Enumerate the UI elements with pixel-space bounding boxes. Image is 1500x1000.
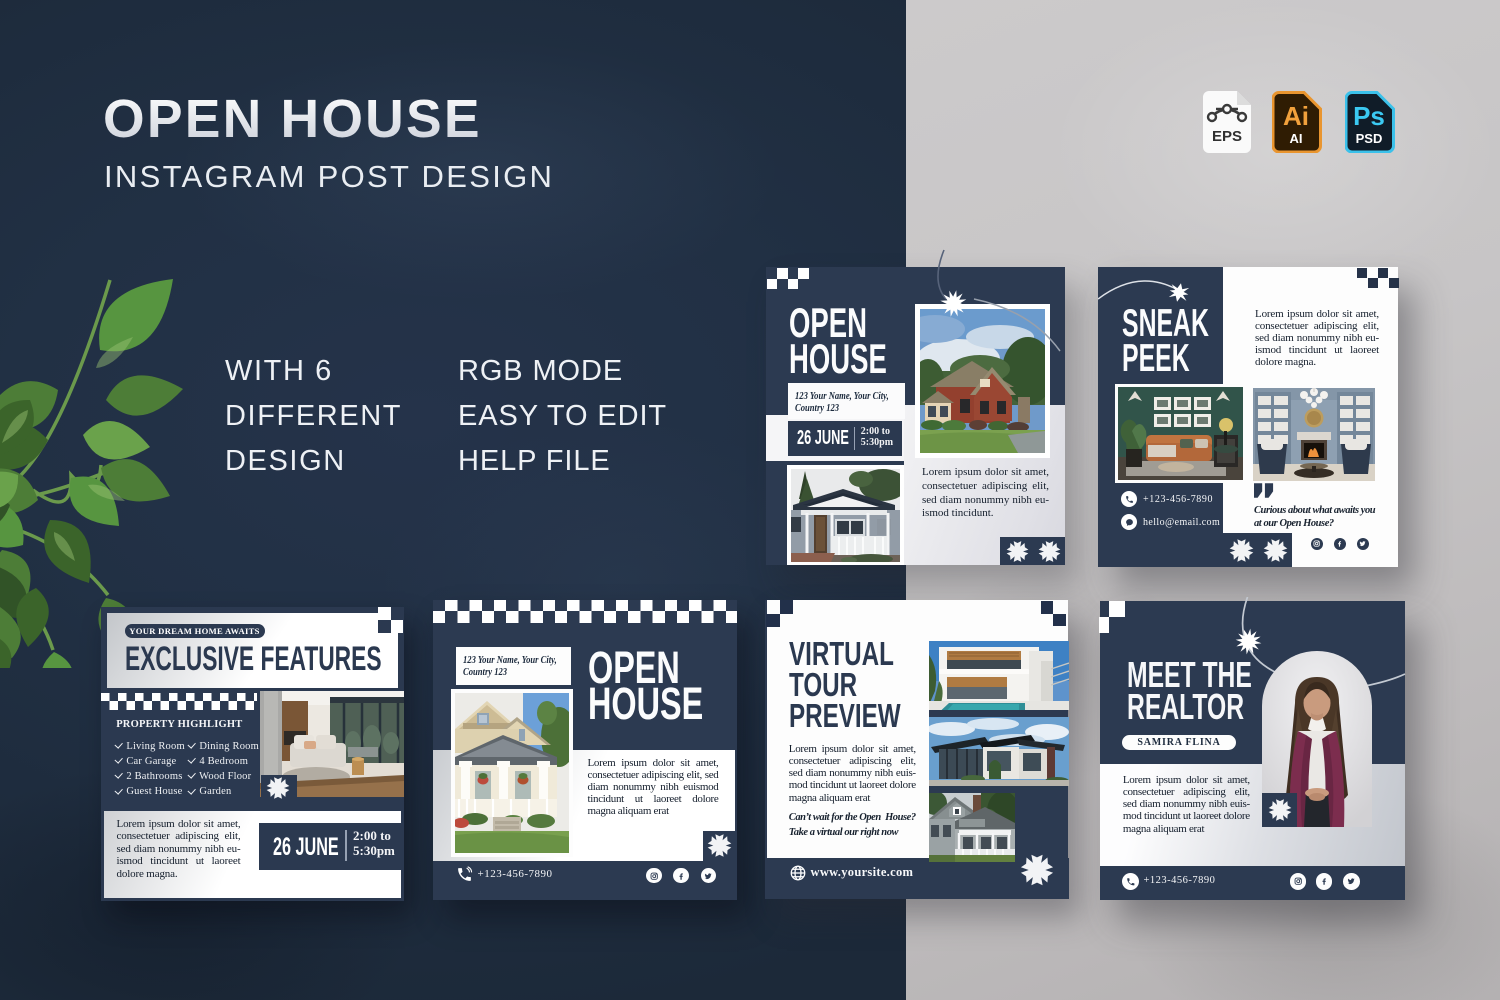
svg-text:Ps: Ps [1353, 101, 1385, 131]
svg-text:PSD: PSD [1356, 131, 1383, 146]
svg-text:EPS: EPS [1212, 128, 1242, 145]
svg-text:Ai: Ai [1283, 101, 1309, 131]
svg-text:AI: AI [1290, 131, 1303, 146]
